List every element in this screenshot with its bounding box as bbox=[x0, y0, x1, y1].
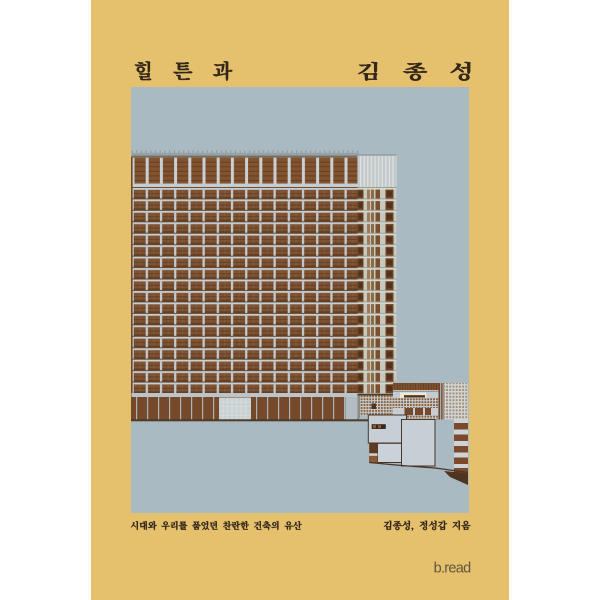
svg-text:b.read: b.read bbox=[434, 561, 472, 577]
